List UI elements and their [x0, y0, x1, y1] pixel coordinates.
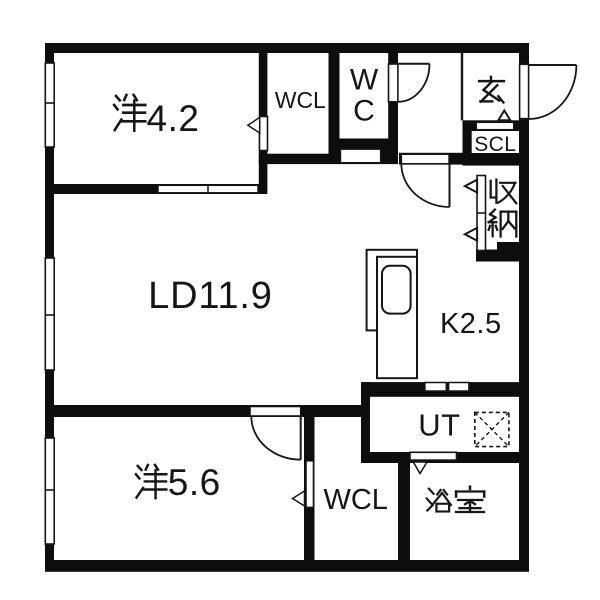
svg-text:K2.5: K2.5 — [440, 308, 502, 340]
svg-text:4.2: 4.2 — [147, 98, 200, 139]
svg-text:UT: UT — [418, 407, 460, 442]
svg-text:SCL: SCL — [474, 133, 516, 156]
svg-text:C: C — [353, 95, 375, 128]
svg-text:W: W — [350, 64, 379, 97]
svg-text:WCL: WCL — [323, 484, 387, 516]
svg-text:WCL: WCL — [275, 87, 326, 113]
svg-text:5.6: 5.6 — [168, 462, 221, 503]
svg-text:LD11.9: LD11.9 — [148, 275, 273, 317]
